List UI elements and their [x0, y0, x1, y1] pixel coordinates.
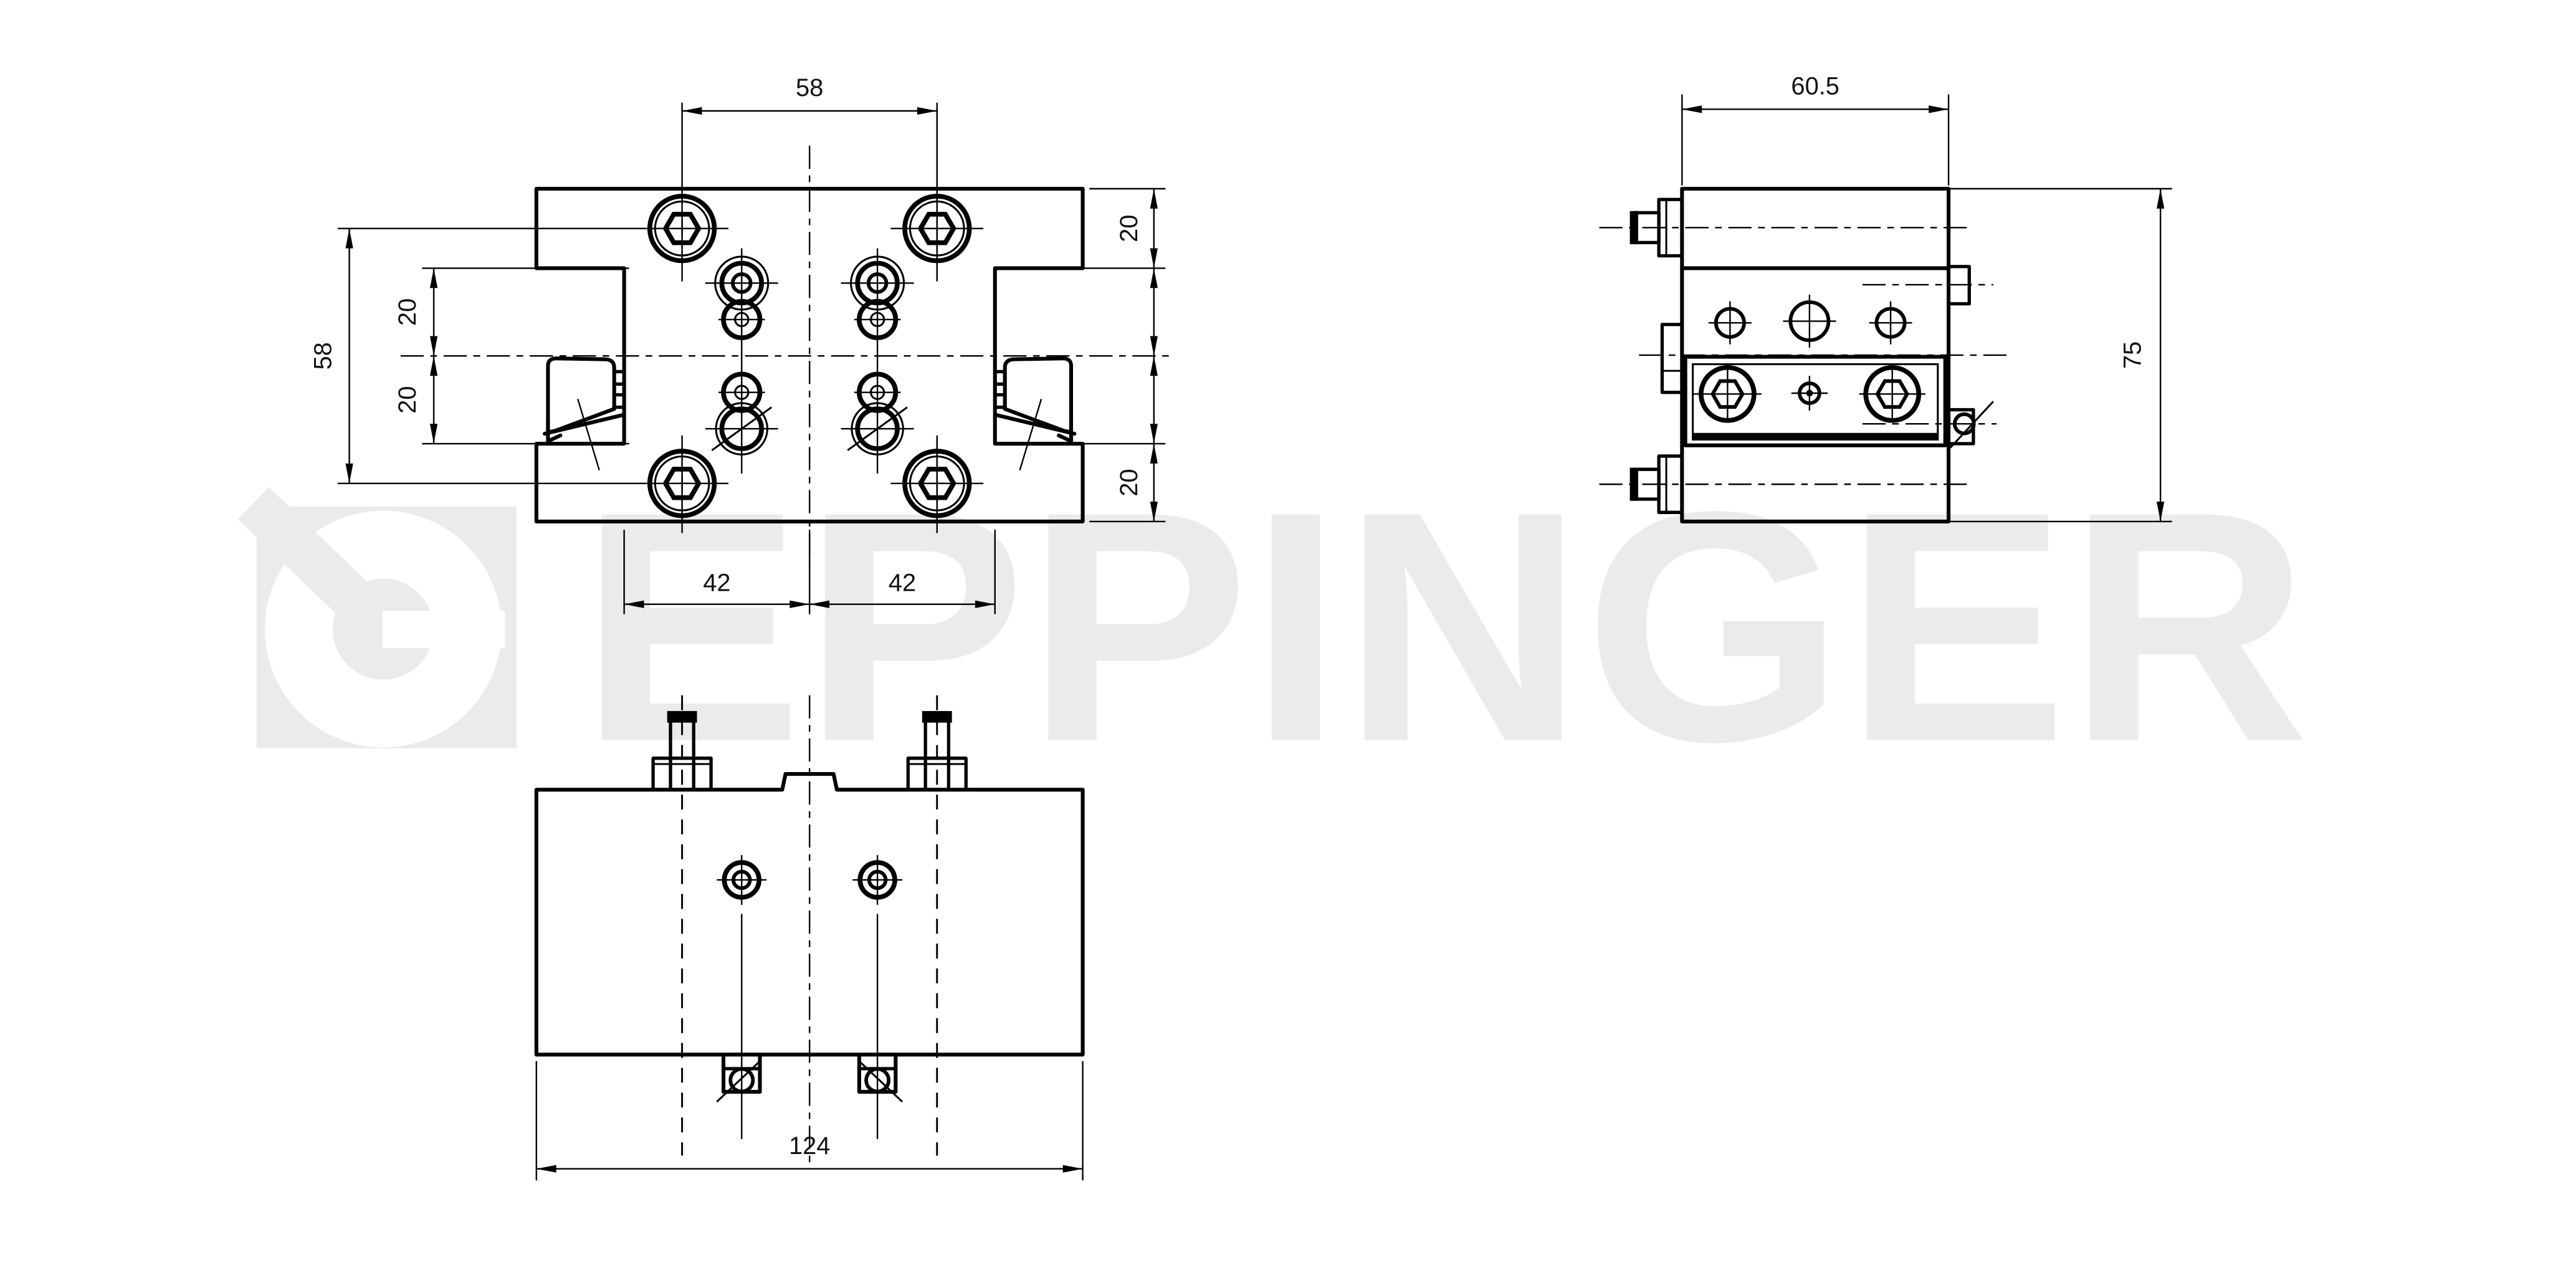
technical-drawing: EPPINGER	[0, 0, 2576, 1288]
mounting-holes	[1709, 295, 1912, 348]
dimension-label: 20	[394, 298, 421, 326]
right-tab	[1863, 267, 1993, 304]
insert-pocket-right	[859, 1054, 902, 1102]
dimension-label: 60.5	[1791, 72, 1839, 100]
dimension-left-20-upper: 20	[394, 268, 629, 356]
logo-e-bar	[383, 611, 505, 648]
dimension-label: 42	[889, 569, 916, 596]
right-insert-block	[1863, 401, 1996, 447]
dimension-label: 20	[1115, 469, 1143, 496]
set-screw-right	[852, 855, 902, 905]
dimension-label: 20	[394, 386, 421, 413]
left-pin-top	[1599, 199, 1970, 255]
left-mid-tab	[1662, 325, 1682, 393]
dimension-label: 124	[789, 1132, 830, 1160]
dimension-top-width: 58	[682, 74, 937, 111]
watermark: EPPINGER	[253, 444, 2309, 810]
dimension-label: 58	[309, 342, 336, 370]
dimension-label: 58	[796, 74, 823, 102]
stud-left	[653, 695, 711, 1156]
stud-right	[908, 695, 966, 1156]
watermark-text: EPPINGER	[580, 444, 2309, 810]
dimension-label: 20	[1115, 214, 1143, 242]
set-screw-left	[717, 855, 766, 905]
dimension-left-20-lower: 20	[394, 356, 629, 444]
dimension-label: 75	[2119, 341, 2146, 369]
insert-pocket-left	[717, 1054, 760, 1102]
clamp-rail	[1686, 357, 1945, 446]
dimension-label: 42	[703, 569, 730, 596]
dimension-left-height: 58	[309, 229, 349, 484]
dimension-side-width: 60.5	[1682, 72, 1949, 185]
dimension-front-width: 124	[537, 1061, 1083, 1180]
